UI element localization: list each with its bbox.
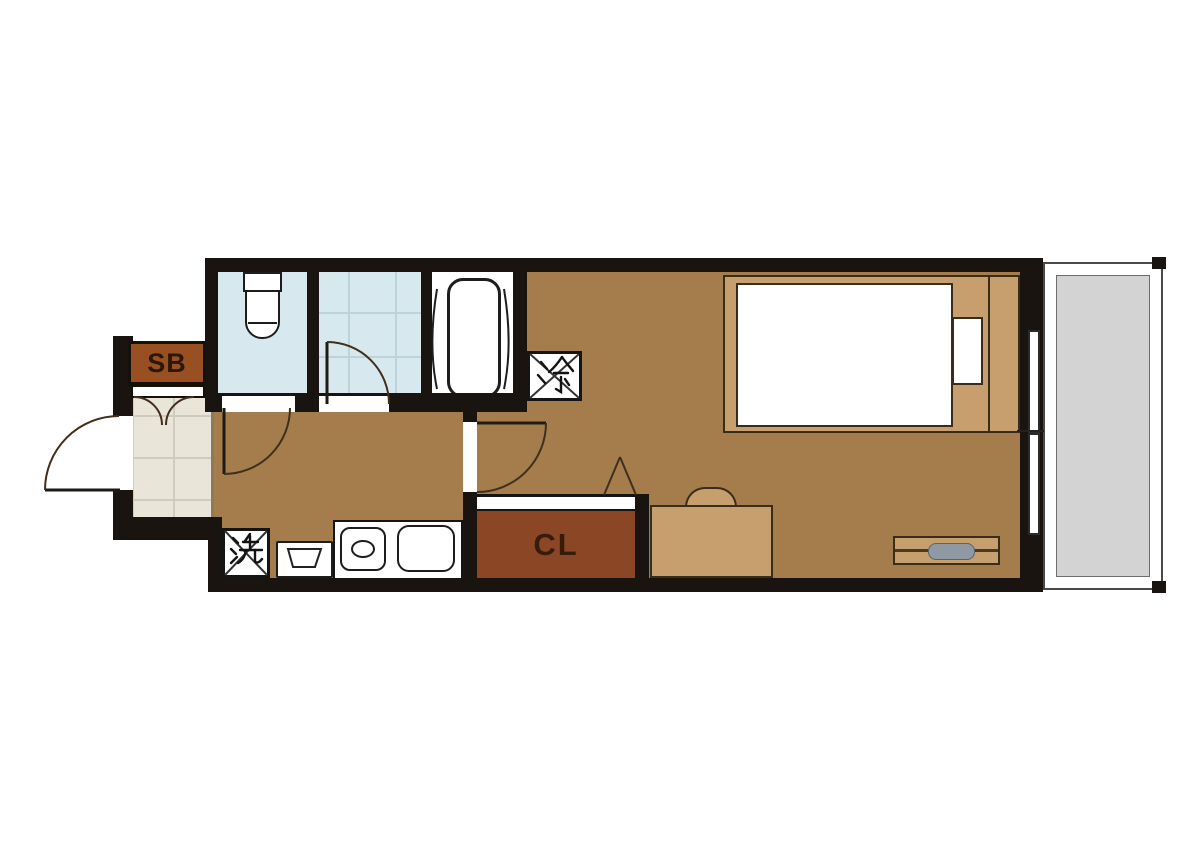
toilet-tank [243,272,282,292]
bathtub [447,278,501,398]
wall-entrance-bottom [113,517,222,540]
closet: CL [477,511,635,578]
door-gap-bathroom [319,396,389,412]
toilet-bowl [245,290,280,339]
window-pane-lower [1028,433,1040,535]
bed-headboard-line [988,277,990,431]
burner [351,540,375,558]
door-gap-toilet [222,396,295,412]
window-pane-upper [1028,330,1040,434]
wall-bath-tub [421,262,432,410]
wall-closet-right [635,494,649,592]
floorplan-canvas: SB CL 冷 洗 [0,0,1199,849]
wash-basin [276,541,333,578]
shoe-box: SB [128,341,206,385]
sink [397,525,455,572]
closet-door-strip [477,494,635,511]
refrigerator-label: 冷 [530,354,531,355]
mattress [736,283,953,427]
toilet-seat-line [248,322,277,324]
wall-top [205,258,1043,272]
door-gap-mainroom [463,422,477,492]
refrigerator-box: 冷 [527,351,582,401]
wall-step [208,517,222,592]
wall-bottom [208,578,1043,592]
desk [650,505,773,578]
washer-label: 洗 [225,531,226,532]
entrance-tile [133,393,213,517]
shoe-box-step [131,385,205,398]
wall-toilet-bath [307,262,319,410]
closet-label: CL [533,527,578,563]
wall-entrance-toilet [205,258,218,412]
balcony-corner-top [1152,257,1166,269]
balcony-corner-bottom [1152,581,1166,593]
tv-board [893,536,1000,565]
balcony-deck [1056,275,1150,577]
stove [340,527,386,571]
tv-unit [928,543,975,560]
bathroom-floor [319,272,421,396]
entrance-door-swing [45,416,120,490]
shoe-box-label: SB [147,348,187,379]
wall-tub-mainroom [513,258,527,412]
washer-box: 洗 [222,528,270,578]
pillow [952,317,983,385]
